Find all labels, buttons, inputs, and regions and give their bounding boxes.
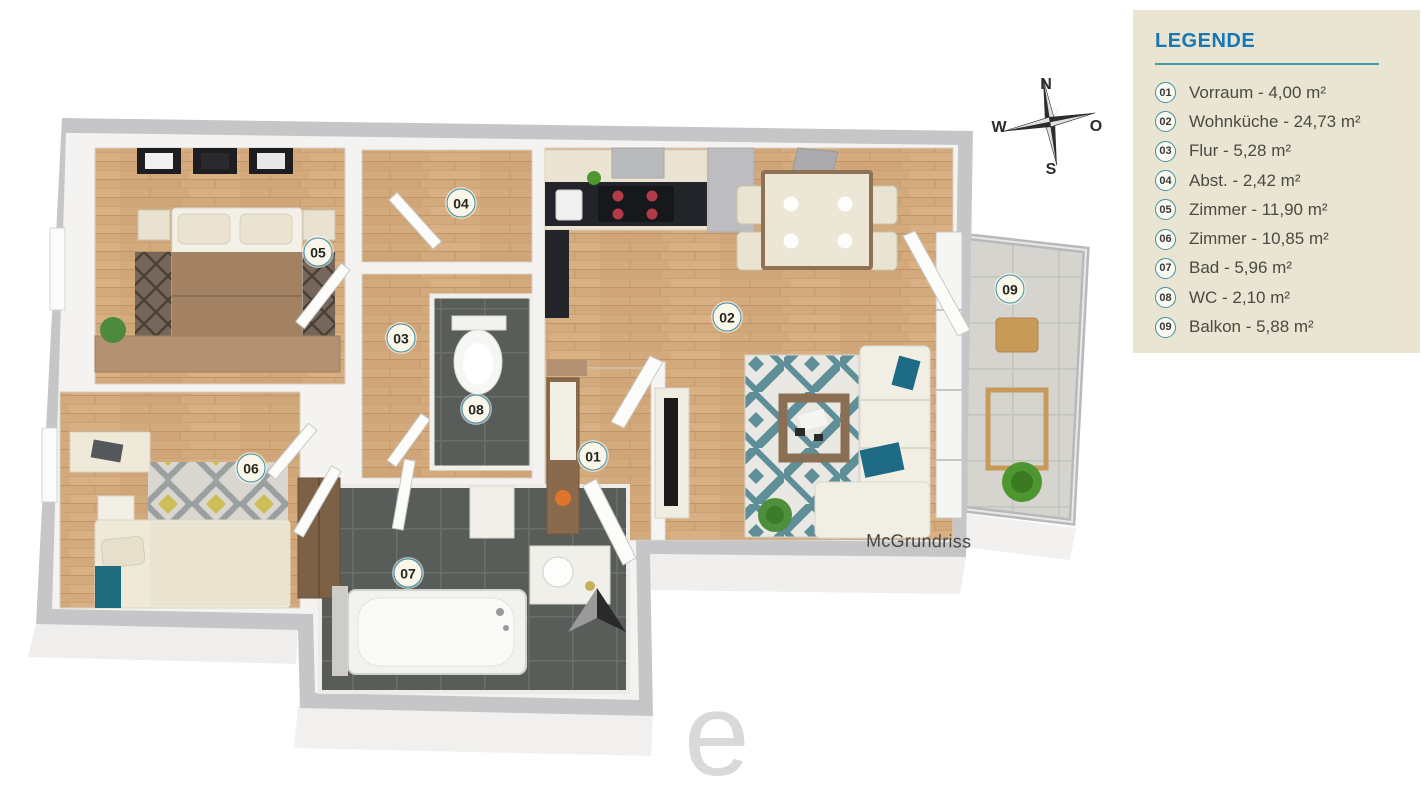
room-badge-05: 05: [304, 238, 333, 267]
hood: [612, 148, 664, 178]
teal-throw: [95, 566, 121, 608]
hob: [598, 186, 674, 222]
legend-label-08: WC - 2,10 m²: [1189, 288, 1290, 308]
tv: [664, 398, 678, 506]
legend-label-03: Flur - 5,28 m²: [1189, 141, 1291, 161]
legend-badge-05: 05: [1155, 199, 1176, 220]
legend-label-04: Abst. - 2,42 m²: [1189, 171, 1300, 191]
balcony-chair: [996, 318, 1038, 352]
legend-item-09: 09 Balkon - 5,88 m²: [1155, 312, 1420, 341]
picture-frames: [137, 148, 293, 174]
room-badge-02: 02: [713, 303, 742, 332]
chair: [869, 232, 897, 270]
legend-badge-04: 04: [1155, 170, 1176, 191]
legend-badge-08: 08: [1155, 287, 1176, 308]
cistern: [452, 316, 506, 330]
legend-item-02: 02 Wohnküche - 24,73 m²: [1155, 107, 1420, 136]
nightstand: [138, 210, 170, 240]
plant: [100, 317, 126, 343]
legend-label-01: Vorraum - 4,00 m²: [1189, 83, 1326, 103]
pillow: [101, 536, 146, 568]
dining-table: [763, 172, 871, 268]
legend-item-04: 04 Abst. - 2,42 m²: [1155, 166, 1420, 195]
chair: [737, 232, 765, 270]
compass-east-label: O: [1090, 118, 1102, 136]
legend-badge-07: 07: [1155, 258, 1176, 279]
legend-badge-02: 02: [1155, 111, 1176, 132]
room-badge-06: 06: [237, 454, 266, 483]
room-badge-09: 09: [996, 275, 1025, 304]
compass-south-label: S: [1046, 161, 1057, 179]
legend-label-06: Zimmer - 10,85 m²: [1189, 229, 1329, 249]
legend-panel: LEGENDE 01 Vorraum - 4,00 m² 02 Wohnküch…: [1133, 10, 1420, 353]
room-badge-07: 07: [394, 559, 423, 588]
legend-label-09: Balkon - 5,88 m²: [1189, 317, 1314, 337]
room-badge-08: 08: [462, 395, 491, 424]
sink: [556, 190, 582, 220]
nightstand: [303, 210, 335, 240]
screenshot-root: 01 02 03 04 05 06 07 08 09 N W O S McGru…: [0, 0, 1422, 800]
orange-deco: [555, 490, 571, 506]
legend-badge-06: 06: [1155, 229, 1176, 250]
legend-label-02: Wohnküche - 24,73 m²: [1189, 112, 1361, 132]
compass-west-label: W: [991, 119, 1006, 137]
chair: [869, 186, 897, 224]
legend-title: LEGENDE: [1155, 30, 1420, 53]
compass-north-label: N: [1040, 76, 1052, 94]
legend-divider: [1155, 63, 1379, 65]
legend-item-08: 08 WC - 2,10 m²: [1155, 283, 1420, 312]
washbasin: [543, 557, 573, 587]
sideboard: [95, 336, 340, 372]
legend-item-07: 07 Bad - 5,96 m²: [1155, 254, 1420, 283]
window: [42, 428, 57, 502]
room-badge-04: 04: [447, 189, 476, 218]
legend-item-05: 05 Zimmer - 11,90 m²: [1155, 195, 1420, 224]
legend-badge-03: 03: [1155, 141, 1176, 162]
legend-list: 01 Vorraum - 4,00 m² 02 Wohnküche - 24,7…: [1155, 78, 1420, 342]
chair: [737, 186, 765, 224]
legend-item-01: 01 Vorraum - 4,00 m²: [1155, 78, 1420, 107]
legend-item-06: 06 Zimmer - 10,85 m²: [1155, 224, 1420, 253]
letter-watermark: e: [684, 676, 750, 794]
legend-label-07: Bad - 5,96 m²: [1189, 258, 1292, 278]
legend-badge-09: 09: [1155, 317, 1176, 338]
legend-label-05: Zimmer - 11,90 m²: [1189, 200, 1328, 220]
room-badge-01: 01: [579, 442, 608, 471]
window: [50, 228, 65, 310]
brand-watermark: McGrundriss: [866, 530, 972, 552]
bath-cabinet: [470, 486, 514, 538]
legend-item-03: 03 Flur - 5,28 m²: [1155, 137, 1420, 166]
legend-badge-01: 01: [1155, 82, 1176, 103]
room-badge-03: 03: [387, 324, 416, 353]
counter-plant: [587, 171, 601, 185]
